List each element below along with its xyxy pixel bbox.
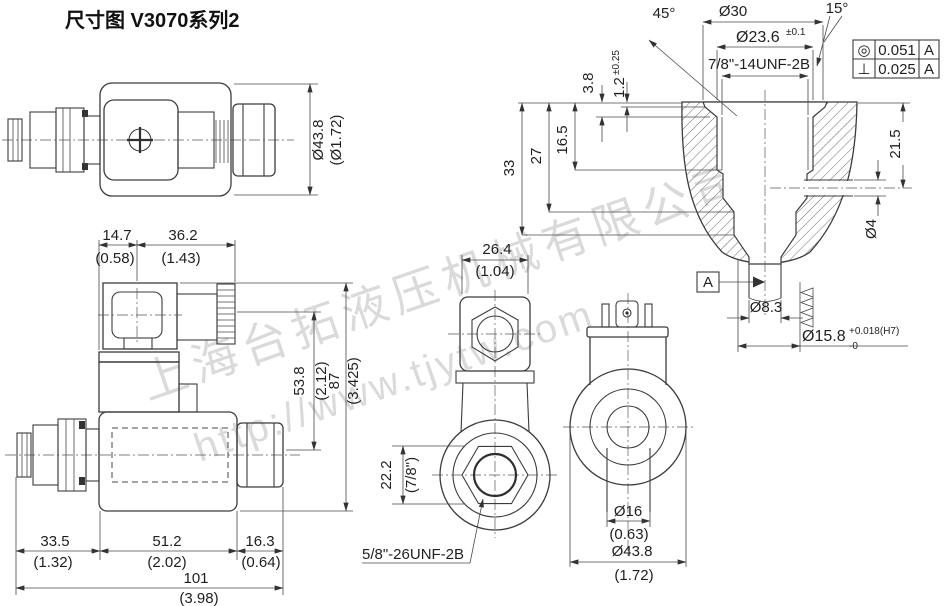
perpendicularity-value: 0.025 bbox=[878, 61, 916, 78]
dim-22-2-inch: (7/8") bbox=[403, 457, 420, 493]
dim-16-5: 16.5 bbox=[554, 125, 571, 154]
datum-arrow bbox=[753, 277, 765, 288]
dim-51-2: 51.2 bbox=[152, 533, 181, 550]
dim-coil-dia-43-8-inch: (1.72) bbox=[614, 567, 653, 584]
page-title: 尺寸图 V3070系列2 bbox=[65, 9, 240, 32]
dim-26-4-inch: (1.04) bbox=[475, 263, 514, 280]
drawing-sheet: 上海台拓液压机械有限公司 http://www.tjytw.com 尺寸图 V3… bbox=[0, 0, 950, 606]
dim-dia-8-3: Ø8.3 bbox=[750, 299, 783, 316]
dim-dia-16-inch: (0.63) bbox=[609, 526, 648, 543]
dim-33: 33 bbox=[501, 160, 518, 177]
dim-87-inch: (3.425) bbox=[345, 357, 362, 405]
thread-label-5-8: 5/8"-26UNF-2B bbox=[362, 546, 464, 563]
tolerance-frame: ◎ 0.051 A ⊥ 0.025 A bbox=[853, 40, 939, 78]
serration-symbol bbox=[801, 288, 813, 327]
dim-36-2: 36.2 bbox=[168, 227, 197, 244]
dim-53-8: 53.8 bbox=[291, 366, 308, 395]
dim-dia-30: Ø30 bbox=[719, 3, 747, 20]
dim-36-2-inch: (1.43) bbox=[161, 250, 200, 267]
dim-21-5: 21.5 bbox=[887, 129, 904, 158]
datum-a-label: A bbox=[703, 274, 713, 291]
view-cartridge-side: Ø43.8 (Ø1.72) bbox=[2, 83, 345, 196]
dim-16-3-inch: (0.64) bbox=[241, 554, 280, 571]
dim-101: 101 bbox=[183, 570, 208, 587]
perpendicularity-datum: A bbox=[924, 61, 934, 78]
dim-14-7-inch: (0.58) bbox=[95, 250, 134, 267]
dim-dia-43-8-inch: (Ø1.72) bbox=[328, 115, 345, 166]
dim-dia-23-6-tol: ±0.1 bbox=[786, 27, 806, 38]
dim-14-7: 14.7 bbox=[102, 227, 131, 244]
dim-101-inch: (3.98) bbox=[179, 590, 218, 606]
dim-dia-43-8: Ø43.8 bbox=[310, 120, 327, 161]
dim-27: 27 bbox=[528, 148, 545, 165]
perpendicularity-icon: ⊥ bbox=[857, 61, 870, 78]
dim-26-4: 26.4 bbox=[482, 241, 511, 258]
dim-1-2-tol: ±0.25 bbox=[611, 50, 622, 75]
dim-87: 87 bbox=[326, 373, 343, 390]
dim-22-2: 22.2 bbox=[378, 460, 395, 489]
watermark: 上海台拓液压机械有限公司 http://www.tjytw.com bbox=[134, 153, 752, 470]
dim-33-5: 33.5 bbox=[40, 533, 69, 550]
technical-drawing: 上海台拓液压机械有限公司 http://www.tjytw.com 尺寸图 V3… bbox=[0, 0, 950, 606]
concentricity-icon: ◎ bbox=[857, 42, 870, 59]
dim-dia-16: Ø16 bbox=[614, 503, 642, 520]
concentricity-value: 0.051 bbox=[878, 42, 916, 59]
dim-dia-23-6: Ø23.6 bbox=[736, 29, 780, 46]
concentricity-datum: A bbox=[924, 42, 934, 59]
dim-dia-4: Ø4 bbox=[863, 219, 880, 239]
dim-dia-15-8: Ø15.8 bbox=[802, 328, 846, 345]
dim-angle-45: 45° bbox=[653, 5, 676, 22]
thread-label-7-8: 7/8"-14UNF-2B bbox=[708, 56, 810, 73]
dim-dia-15-8-sup: +0.018(H7) bbox=[849, 326, 899, 337]
dim-angle-15: 15° bbox=[826, 0, 849, 17]
dim-3-8: 3.8 bbox=[580, 73, 597, 94]
dim-dia-15-8-sub: -0 bbox=[849, 341, 858, 352]
dim-1-2: 1.2 bbox=[611, 77, 628, 98]
dim-33-5-inch: (1.32) bbox=[33, 554, 72, 571]
dim-16-3: 16.3 bbox=[245, 533, 274, 550]
dim-51-2-inch: (2.02) bbox=[147, 554, 186, 571]
dim-coil-dia-43-8: Ø43.8 bbox=[612, 543, 653, 560]
